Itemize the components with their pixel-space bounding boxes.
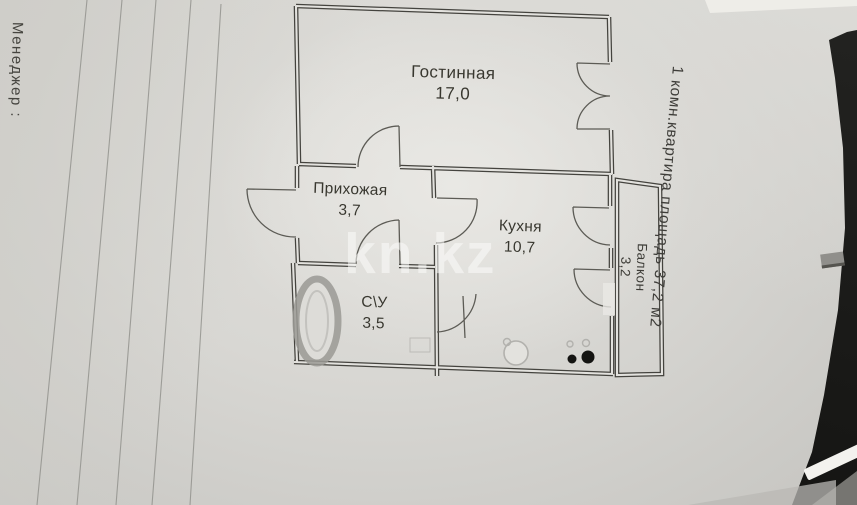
kn-kz-watermark: kn.kz <box>344 221 497 287</box>
label-bathroom: С\У 3,5 <box>343 291 404 335</box>
room-name: С\У <box>344 291 405 314</box>
photo-of-floor-plan: Гостинная 17,0 Прихожая 3,7 Кухня 10,7 С… <box>0 0 857 505</box>
room-name: Прихожая <box>300 177 401 201</box>
ruled-lines <box>37 0 221 505</box>
room-area: 3,2 <box>616 227 635 306</box>
wall-pier <box>603 283 615 315</box>
manager-note: Менеджер : <box>7 22 26 118</box>
bathtub-icon <box>296 279 338 363</box>
room-area: 17,0 <box>402 82 503 106</box>
label-living-room: Гостинная 17,0 <box>402 61 503 106</box>
room-area: 3,7 <box>299 198 400 222</box>
room-area: 3,5 <box>343 312 404 335</box>
kitchen-sink-icon <box>504 339 529 366</box>
label-hallway: Прихожая 3,7 <box>299 177 400 222</box>
room-name: Гостинная <box>403 61 504 85</box>
label-balcony: Балкон 3,2 <box>616 227 651 306</box>
stove-icon <box>567 340 595 364</box>
bathroom-sink-icon <box>410 338 430 352</box>
